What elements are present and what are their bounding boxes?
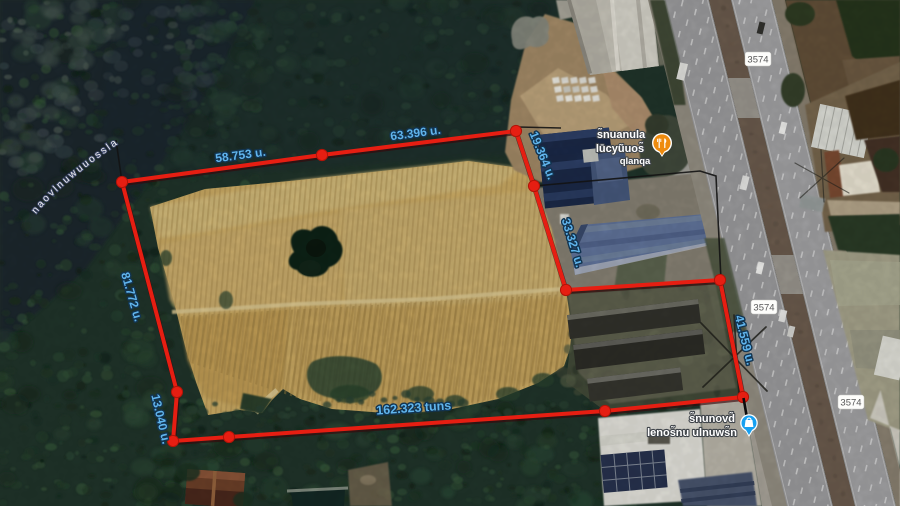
svg-text:s̃nunovd̃: s̃nunovd̃ [689,412,735,425]
svg-text:lūcyũuos̃: lūcyũuos̃ [596,142,644,155]
svg-text:s̃nuanula: s̃nuanula [597,128,646,141]
svg-text:qlanqa: qlanqa [620,156,651,167]
svg-text:lenos̃nu ulnuws̃n: lenos̃nu ulnuws̃n [647,426,737,439]
svg-text:3574: 3574 [747,55,768,66]
svg-text:3574: 3574 [753,303,774,314]
svg-text:3574: 3574 [840,398,861,409]
